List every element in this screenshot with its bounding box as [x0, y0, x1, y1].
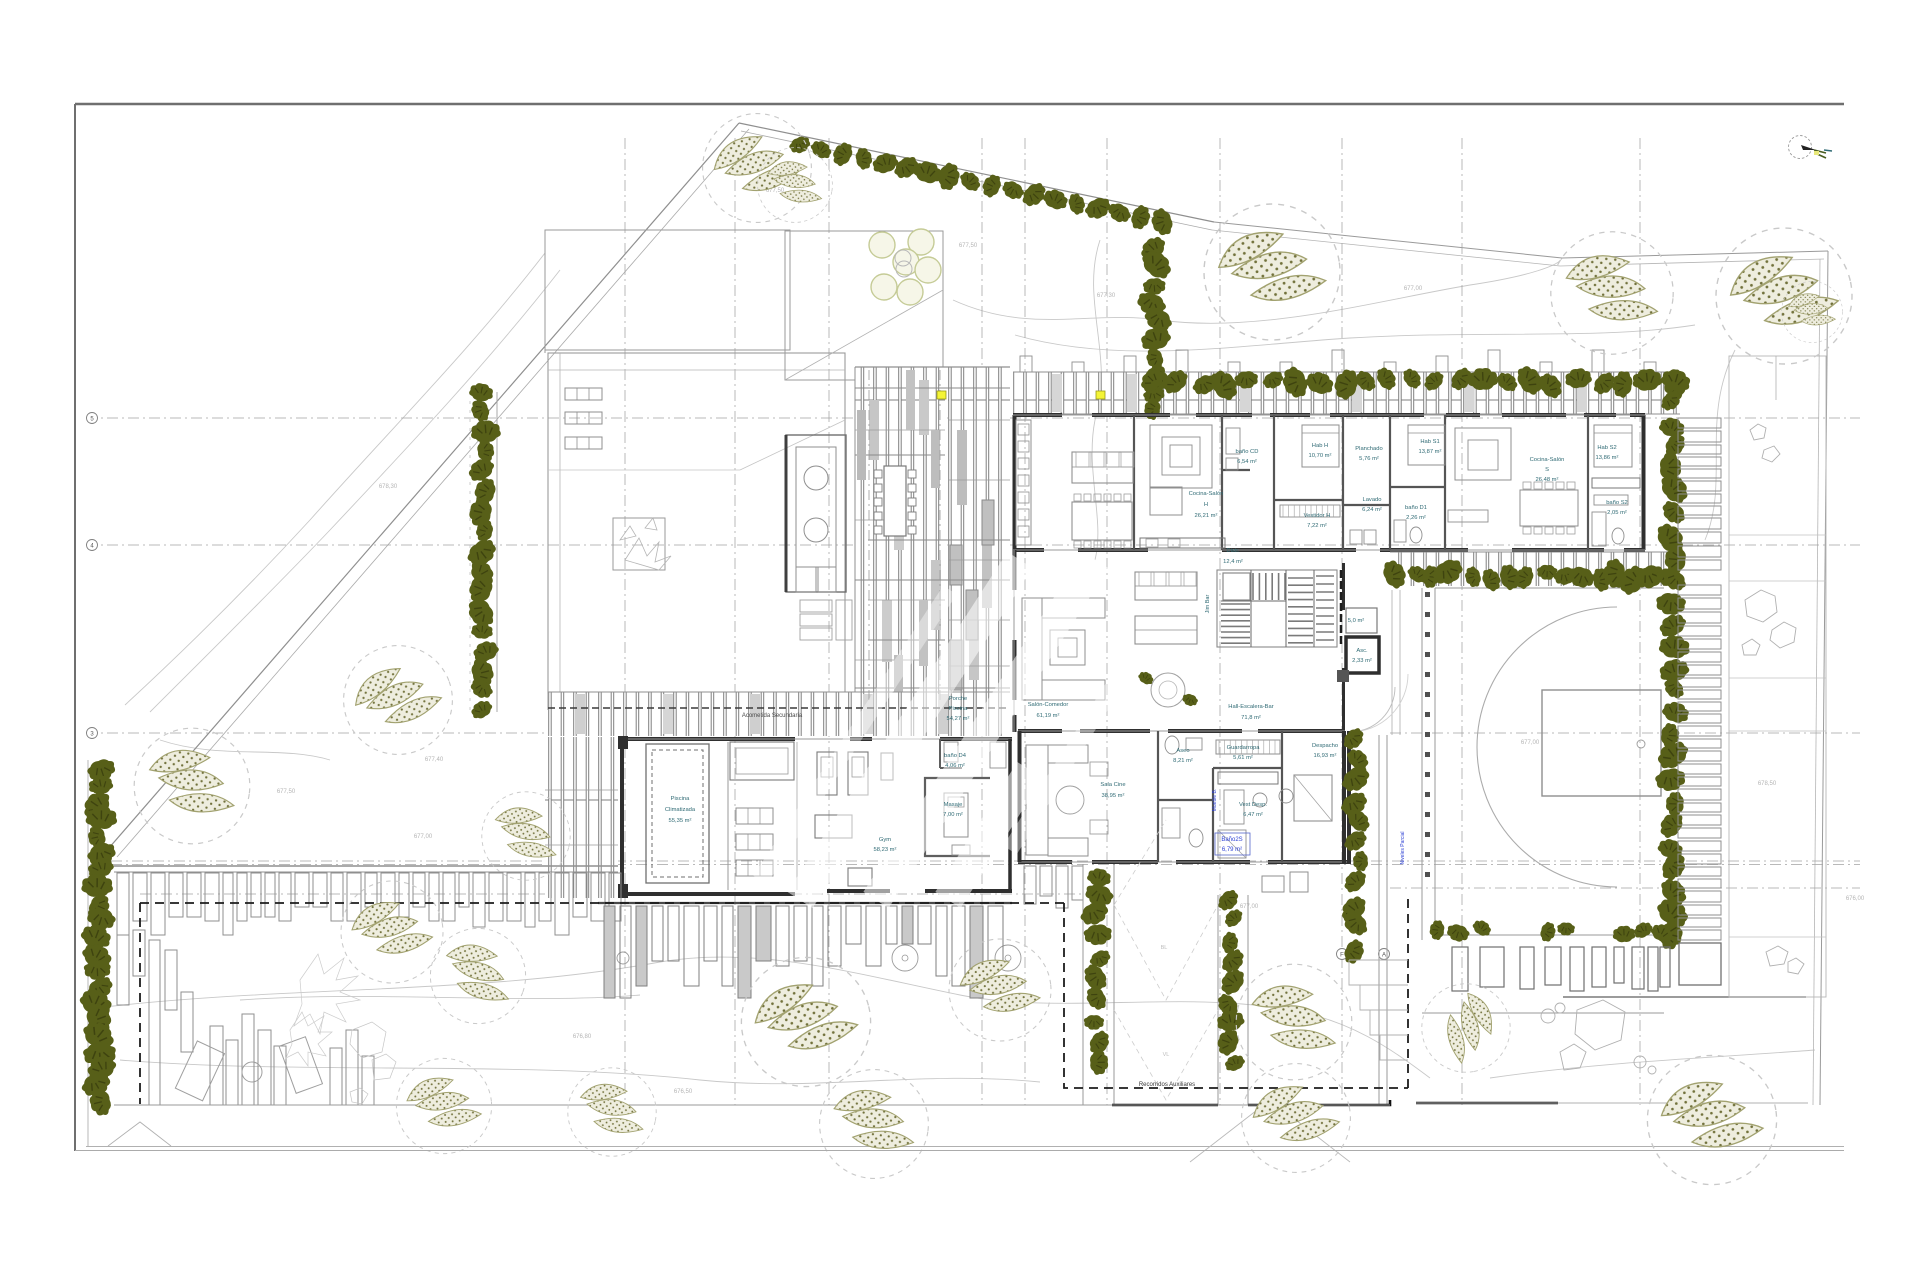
svg-text:Asc.: Asc. [1356, 648, 1368, 654]
svg-text:Jim Bar: Jim Bar [1205, 595, 1211, 614]
svg-text:677,00: 677,00 [1404, 286, 1423, 292]
svg-text:7,22 m²: 7,22 m² [1307, 523, 1327, 529]
svg-text:Climatizada: Climatizada [665, 807, 696, 813]
svg-text:Aseo: Aseo [1176, 748, 1189, 754]
svg-text:71,8 m²: 71,8 m² [1241, 715, 1261, 721]
svg-text:54,27 m²: 54,27 m² [947, 716, 970, 722]
svg-text:S: S [1545, 467, 1549, 473]
svg-text:Cocina-Salón: Cocina-Salón [1530, 457, 1565, 463]
svg-text:Niveles Parcial: Niveles Parcial [1400, 831, 1406, 864]
svg-text:7,00 m²: 7,00 m² [943, 812, 963, 818]
svg-text:Hall-Escalera-Bar: Hall-Escalera-Bar [1228, 704, 1273, 710]
svg-text:5,0 m²: 5,0 m² [1348, 618, 1364, 624]
svg-text:Lavado: Lavado [1362, 497, 1381, 503]
svg-text:4,06 m²: 4,06 m² [945, 763, 965, 769]
svg-text:Masaje: Masaje [944, 802, 963, 808]
svg-text:13,86 m²: 13,86 m² [1596, 455, 1619, 461]
svg-text:5,76 m²: 5,76 m² [1359, 456, 1379, 462]
svg-text:Baño2S: Baño2S [1221, 837, 1242, 843]
svg-text:Mueble B.: Mueble B. [1212, 789, 1218, 812]
svg-text:676,50: 676,50 [674, 1089, 693, 1095]
svg-text:F: F [1340, 952, 1344, 958]
svg-text:61,19 m²: 61,19 m² [1037, 713, 1060, 719]
svg-text:6,54 m²: 6,54 m² [1237, 459, 1257, 465]
svg-text:6,24 m²: 6,24 m² [1362, 507, 1382, 513]
svg-text:677,30: 677,30 [1097, 293, 1116, 299]
svg-text:678,30: 678,30 [379, 484, 398, 490]
svg-text:6,79 m²: 6,79 m² [1222, 847, 1242, 853]
svg-text:baño S2: baño S2 [1606, 500, 1628, 506]
svg-text:Sala Cine: Sala Cine [1100, 782, 1125, 788]
svg-text:12,4 m²: 12,4 m² [1223, 559, 1243, 565]
svg-text:676,80: 676,80 [573, 1034, 592, 1040]
svg-text:58,23 m²: 58,23 m² [874, 847, 897, 853]
svg-text:676,00: 676,00 [1846, 896, 1865, 902]
svg-text:677,50: 677,50 [277, 789, 296, 795]
svg-text:Distr.: Distr. [1226, 548, 1240, 554]
svg-text:H: H [1204, 502, 1208, 508]
svg-text:Recorridos Auxiliares: Recorridos Auxiliares [1139, 1082, 1195, 1088]
svg-text:10,70 m²: 10,70 m² [1309, 453, 1332, 459]
svg-text:Vestidor H: Vestidor H [1304, 513, 1331, 519]
svg-text:677,40: 677,40 [425, 757, 444, 763]
svg-text:16,93 m²: 16,93 m² [1314, 753, 1337, 759]
svg-text:Cocina-Salón: Cocina-Salón [1189, 491, 1224, 497]
svg-text:677,00: 677,00 [1521, 740, 1540, 746]
svg-text:38,95 m²: 38,95 m² [1102, 793, 1125, 799]
svg-text:2,26 m²: 2,26 m² [1406, 515, 1426, 521]
svg-text:2,33 m²: 2,33 m² [1352, 658, 1372, 664]
svg-text:baño D4: baño D4 [944, 753, 967, 759]
svg-text:Despacho: Despacho [1312, 743, 1338, 749]
svg-text:26,48 m²: 26,48 m² [1536, 477, 1559, 483]
svg-text:Porche: Porche [949, 696, 967, 702]
svg-text:55,35 m²: 55,35 m² [669, 818, 692, 824]
svg-text:Guardarropa: Guardarropa [1227, 745, 1261, 751]
svg-text:VL: VL [1163, 1052, 1170, 1058]
svg-text:baño CD: baño CD [1236, 449, 1259, 455]
svg-text:Salón-Comedor: Salón-Comedor [1028, 702, 1069, 708]
svg-text:BL: BL [1161, 945, 1168, 951]
svg-text:677,50: 677,50 [959, 243, 978, 249]
svg-text:678,50: 678,50 [1758, 781, 1777, 787]
svg-text:13,87 m²: 13,87 m² [1419, 449, 1442, 455]
svg-text:Acometida Secundaria: Acometida Secundaria [742, 713, 803, 719]
svg-text:Planchado: Planchado [1355, 446, 1382, 452]
svg-text:Piscina: Piscina [671, 796, 690, 802]
svg-text:5,61 m²: 5,61 m² [1233, 755, 1253, 761]
svg-text:Piscina: Piscina [949, 706, 968, 712]
svg-text:Vest Desp.: Vest Desp. [1239, 802, 1267, 808]
svg-text:677,00: 677,00 [1240, 904, 1259, 910]
svg-text:Hab S1: Hab S1 [1420, 439, 1439, 445]
svg-text:2,05 m²: 2,05 m² [1607, 510, 1627, 516]
svg-text:6,47 m²: 6,47 m² [1243, 812, 1263, 818]
svg-text:26,21 m²: 26,21 m² [1195, 513, 1218, 519]
svg-text:677,00: 677,00 [414, 834, 433, 840]
svg-text:Hab S2: Hab S2 [1597, 445, 1616, 451]
svg-text:Gym: Gym [879, 837, 891, 843]
svg-text:8,21 m²: 8,21 m² [1173, 758, 1193, 764]
svg-text:Hab H: Hab H [1312, 443, 1328, 449]
svg-text:baño D1: baño D1 [1405, 505, 1427, 511]
svg-text:A: A [1382, 952, 1386, 958]
